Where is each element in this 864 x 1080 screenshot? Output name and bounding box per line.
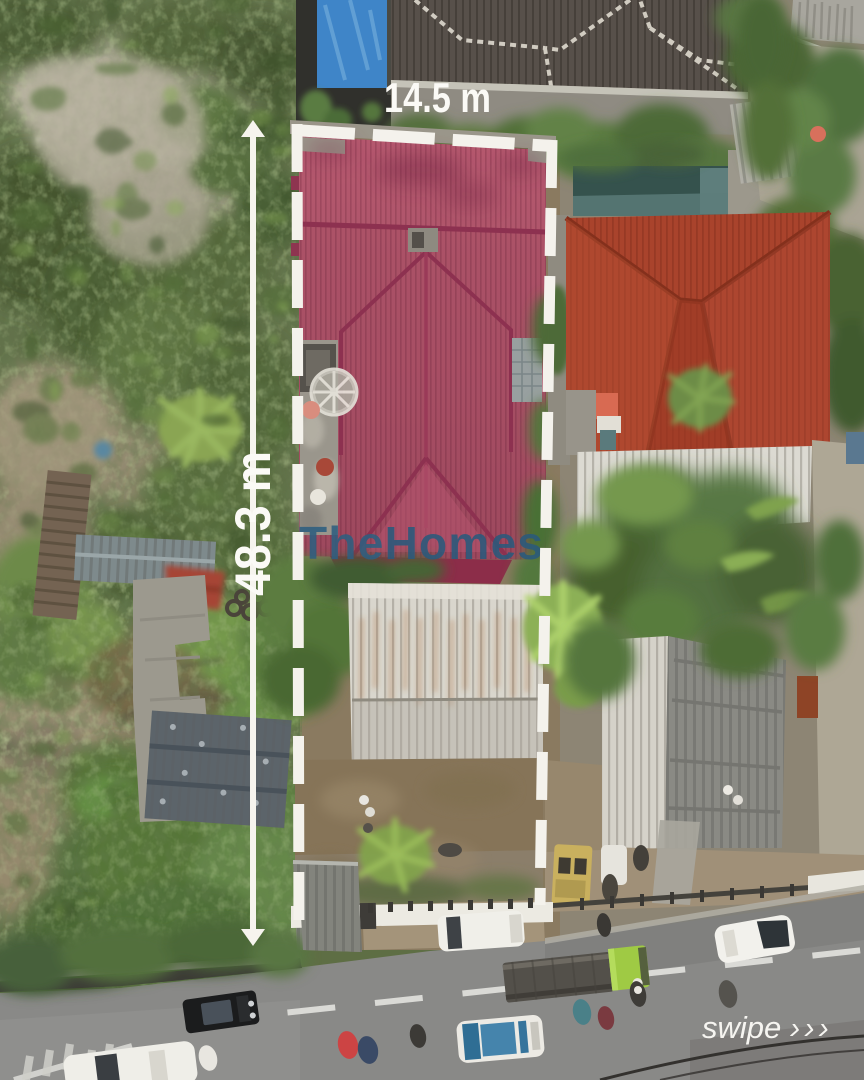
svg-text:14.5 m: 14.5 m [384,74,491,121]
svg-text:swipe ›››: swipe ››› [702,1010,833,1045]
svg-text:TheHomes: TheHomes [299,517,543,569]
svg-text:48.3 m: 48.3 m [225,451,281,596]
